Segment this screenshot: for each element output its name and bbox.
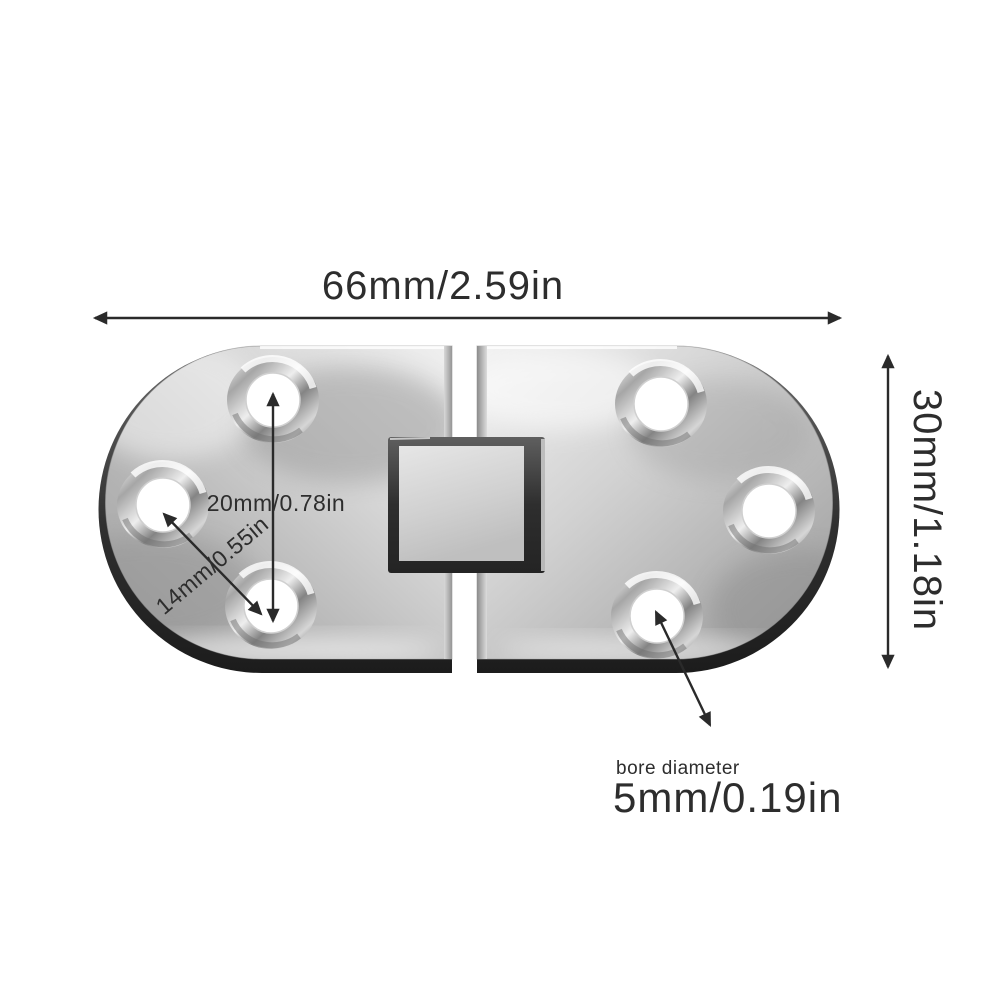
right-plate-seam-edge-bottom: [477, 573, 487, 659]
left-plate-seam-edge-top: [444, 346, 452, 437]
hinge-knuckle: [388, 437, 545, 573]
left-plate-seam-edge-bottom: [444, 573, 452, 659]
knuckle-right-highlight: [541, 439, 545, 571]
diagram-svg: 66mm/2.59in 30mm/1.18in 20mm/0.78in 14mm…: [0, 0, 1000, 1000]
hinge-photo: [40, 340, 890, 673]
vertical-hole-spacing-label: 20mm/0.78in: [207, 490, 345, 516]
bore-diameter-label: 5mm/0.19in: [613, 774, 842, 821]
product-diagram: 66mm/2.59in 30mm/1.18in 20mm/0.78in 14mm…: [0, 0, 1000, 1000]
knuckle-top-highlight: [390, 438, 430, 439]
height-dimension-label: 30mm/1.18in: [905, 389, 949, 631]
knuckle-face: [399, 446, 524, 561]
width-dimension-label: 66mm/2.59in: [322, 264, 564, 308]
right-plate-seam-edge-top: [477, 346, 487, 437]
screw-hole: [615, 361, 707, 447]
screw-hole: [723, 468, 815, 554]
screw-hole: [225, 563, 317, 649]
screw-hole: [117, 462, 209, 548]
